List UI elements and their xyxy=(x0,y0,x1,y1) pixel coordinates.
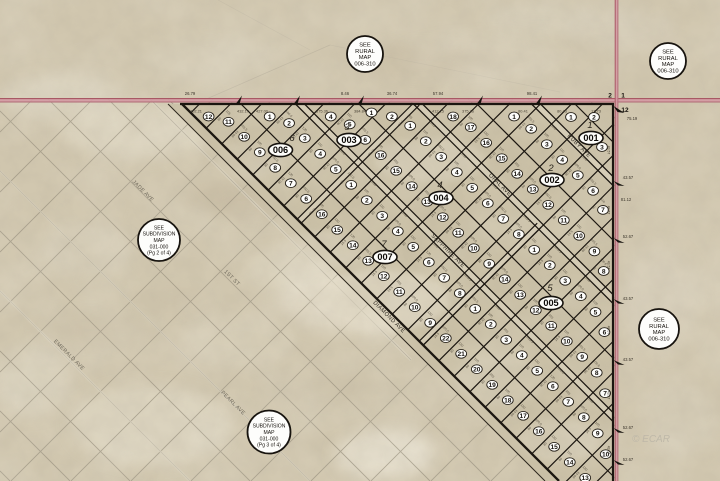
svg-text:52.67: 52.67 xyxy=(623,234,634,239)
svg-text:14: 14 xyxy=(566,460,574,467)
svg-text:SEE: SEE xyxy=(653,317,665,323)
svg-text:RURAL: RURAL xyxy=(658,56,678,62)
svg-text:13: 13 xyxy=(517,292,525,299)
svg-text:17: 17 xyxy=(520,413,528,420)
svg-text:6: 6 xyxy=(289,133,295,144)
svg-text:2: 2 xyxy=(390,114,394,121)
svg-text:(Pg 3 of 4): (Pg 3 of 4) xyxy=(257,443,281,449)
svg-text:4: 4 xyxy=(396,229,400,236)
svg-text:16: 16 xyxy=(483,140,491,147)
svg-text:402.21: 402.21 xyxy=(190,109,202,114)
svg-text:1: 1 xyxy=(349,182,353,189)
svg-text:5: 5 xyxy=(411,244,415,251)
svg-text:6: 6 xyxy=(486,201,490,208)
svg-text:SEE: SEE xyxy=(662,49,674,55)
svg-text:52.67: 52.67 xyxy=(623,425,634,430)
svg-text:7: 7 xyxy=(289,181,293,188)
svg-text:43.57: 43.57 xyxy=(607,391,611,400)
svg-text:3: 3 xyxy=(504,337,508,344)
svg-text:RURAL: RURAL xyxy=(355,49,375,55)
svg-text:MAP: MAP xyxy=(153,238,165,244)
svg-text:9: 9 xyxy=(596,431,600,438)
svg-text:15: 15 xyxy=(393,168,401,175)
svg-text:8: 8 xyxy=(582,415,586,422)
svg-text:3: 3 xyxy=(380,213,384,220)
svg-text:9: 9 xyxy=(593,249,597,256)
svg-text:5: 5 xyxy=(535,368,539,375)
svg-text:14: 14 xyxy=(408,184,416,191)
svg-text:6: 6 xyxy=(427,260,431,267)
svg-text:5: 5 xyxy=(594,309,598,316)
svg-text:5: 5 xyxy=(547,283,553,294)
svg-text:2: 2 xyxy=(365,198,369,205)
svg-text:MAP: MAP xyxy=(662,62,675,68)
svg-text:SUBDIVISION: SUBDIVISION xyxy=(143,232,176,238)
svg-text:4: 4 xyxy=(437,180,442,191)
svg-text:43.57: 43.57 xyxy=(607,206,611,215)
svg-text:432.17: 432.17 xyxy=(237,109,249,114)
svg-text:18: 18 xyxy=(504,398,512,405)
svg-text:5: 5 xyxy=(576,173,580,180)
svg-text:006-310: 006-310 xyxy=(354,62,375,68)
svg-text:SUBDIVISION: SUBDIVISION xyxy=(253,424,286,430)
svg-text:15: 15 xyxy=(498,156,506,163)
svg-text:1: 1 xyxy=(408,123,412,130)
svg-text:3: 3 xyxy=(303,136,307,143)
svg-text:4: 4 xyxy=(560,157,564,164)
svg-text:12: 12 xyxy=(439,215,447,222)
svg-text:2: 2 xyxy=(287,120,291,127)
svg-text:2: 2 xyxy=(592,114,596,121)
svg-text:7: 7 xyxy=(601,207,605,214)
svg-text:2: 2 xyxy=(548,263,552,270)
svg-text:11: 11 xyxy=(560,218,567,225)
svg-text:(Pg 2 of 4): (Pg 2 of 4) xyxy=(147,251,171,257)
svg-text:1: 1 xyxy=(473,306,477,313)
svg-text:11: 11 xyxy=(455,230,462,237)
svg-text:98.41: 98.41 xyxy=(527,91,538,96)
svg-text:© ECAR: © ECAR xyxy=(632,434,670,445)
svg-text:384.84: 384.84 xyxy=(354,109,367,114)
svg-text:RURAL: RURAL xyxy=(649,324,669,330)
svg-text:375.36: 375.36 xyxy=(462,109,474,114)
svg-text:3: 3 xyxy=(600,144,604,151)
svg-text:43.57: 43.57 xyxy=(623,175,634,180)
svg-text:4: 4 xyxy=(579,294,583,301)
svg-text:001: 001 xyxy=(583,133,598,143)
svg-text:1: 1 xyxy=(569,114,573,121)
svg-text:5: 5 xyxy=(334,167,338,174)
svg-text:8: 8 xyxy=(517,232,521,239)
svg-text:007: 007 xyxy=(377,252,392,262)
svg-text:8: 8 xyxy=(595,370,599,377)
svg-text:9: 9 xyxy=(258,150,262,157)
svg-text:2: 2 xyxy=(547,163,554,174)
svg-text:3: 3 xyxy=(344,122,350,133)
svg-text:7: 7 xyxy=(501,216,505,223)
svg-text:7: 7 xyxy=(381,239,387,250)
svg-text:43.57: 43.57 xyxy=(623,296,634,301)
svg-text:10: 10 xyxy=(576,233,584,240)
svg-text:12: 12 xyxy=(545,202,553,209)
svg-text:14: 14 xyxy=(514,171,522,178)
svg-text:006: 006 xyxy=(273,145,288,155)
svg-text:16: 16 xyxy=(377,153,385,160)
svg-text:10: 10 xyxy=(241,134,249,141)
svg-text:80.43: 80.43 xyxy=(557,109,567,114)
svg-text:43.57: 43.57 xyxy=(623,357,634,362)
svg-text:003: 003 xyxy=(341,135,356,145)
svg-text:13: 13 xyxy=(582,475,590,481)
svg-text:8: 8 xyxy=(273,165,277,172)
svg-text:12: 12 xyxy=(532,308,540,315)
svg-text:14: 14 xyxy=(349,243,357,250)
svg-text:2: 2 xyxy=(529,126,533,133)
svg-text:MAP: MAP xyxy=(263,430,275,436)
svg-text:11: 11 xyxy=(548,323,555,330)
svg-text:4: 4 xyxy=(455,170,459,177)
svg-text:43.57: 43.57 xyxy=(607,146,611,155)
svg-text:20: 20 xyxy=(473,367,481,374)
svg-text:1: 1 xyxy=(621,93,625,100)
svg-text:8: 8 xyxy=(458,291,462,298)
svg-text:MAP: MAP xyxy=(653,330,666,336)
svg-text:427.00: 427.00 xyxy=(256,109,269,114)
svg-text:375.36: 375.36 xyxy=(316,109,328,114)
svg-text:5: 5 xyxy=(470,185,474,192)
svg-text:412.15: 412.15 xyxy=(432,109,444,114)
svg-text:6: 6 xyxy=(363,137,367,144)
svg-text:031-000: 031-000 xyxy=(150,244,169,250)
svg-text:6: 6 xyxy=(304,196,308,203)
svg-text:006-310: 006-310 xyxy=(648,337,669,343)
svg-text:43.57: 43.57 xyxy=(607,326,611,335)
svg-text:21: 21 xyxy=(458,351,466,358)
svg-text:3: 3 xyxy=(545,142,549,149)
svg-text:SEE: SEE xyxy=(264,417,275,423)
svg-text:1: 1 xyxy=(532,247,536,254)
svg-text:006-310: 006-310 xyxy=(657,69,678,75)
svg-text:002: 002 xyxy=(544,175,559,185)
svg-text:14: 14 xyxy=(501,277,509,284)
svg-text:13: 13 xyxy=(529,187,537,194)
svg-text:1: 1 xyxy=(587,120,592,131)
svg-text:031-000: 031-000 xyxy=(260,436,279,442)
svg-text:9: 9 xyxy=(487,261,491,268)
svg-text:4: 4 xyxy=(520,353,524,360)
svg-text:12: 12 xyxy=(621,107,629,114)
svg-text:11: 11 xyxy=(396,289,403,296)
svg-text:13: 13 xyxy=(365,258,373,265)
svg-text:4: 4 xyxy=(318,151,322,158)
svg-text:8: 8 xyxy=(602,268,606,275)
svg-text:2: 2 xyxy=(424,139,428,146)
svg-text:12: 12 xyxy=(380,274,388,281)
svg-text:43.57: 43.57 xyxy=(607,261,611,270)
svg-text:1: 1 xyxy=(370,110,374,117)
svg-text:17: 17 xyxy=(467,125,475,132)
svg-text:7: 7 xyxy=(442,275,446,282)
svg-text:SEE: SEE xyxy=(154,225,165,231)
svg-text:26.79: 26.79 xyxy=(185,91,196,96)
svg-text:6: 6 xyxy=(603,329,607,336)
svg-text:7: 7 xyxy=(566,399,570,406)
svg-text:1: 1 xyxy=(268,114,272,121)
svg-text:6: 6 xyxy=(551,384,555,391)
svg-text:10: 10 xyxy=(563,339,571,346)
svg-text:36.74: 36.74 xyxy=(387,91,398,96)
svg-text:12: 12 xyxy=(205,114,213,121)
svg-text:10: 10 xyxy=(411,305,419,312)
svg-text:80.41: 80.41 xyxy=(518,109,528,114)
svg-text:19: 19 xyxy=(489,382,497,389)
svg-text:2: 2 xyxy=(608,93,612,100)
svg-text:2: 2 xyxy=(489,322,493,329)
svg-text:43.57: 43.57 xyxy=(607,446,611,455)
svg-text:MAP: MAP xyxy=(359,55,372,61)
svg-text:18: 18 xyxy=(449,114,457,121)
svg-text:004: 004 xyxy=(433,193,449,203)
svg-text:16: 16 xyxy=(535,429,543,436)
svg-text:1: 1 xyxy=(512,114,516,121)
svg-text:9: 9 xyxy=(428,320,432,327)
svg-text:52.67: 52.67 xyxy=(623,457,634,462)
svg-text:3: 3 xyxy=(439,154,443,161)
svg-text:81.12: 81.12 xyxy=(621,197,632,202)
svg-text:6: 6 xyxy=(591,188,595,195)
svg-text:SEE: SEE xyxy=(359,42,371,48)
svg-text:16: 16 xyxy=(318,212,326,219)
svg-text:22: 22 xyxy=(442,336,450,343)
svg-text:15: 15 xyxy=(334,227,342,234)
svg-text:005: 005 xyxy=(543,298,558,308)
svg-text:11: 11 xyxy=(225,119,232,126)
svg-text:15: 15 xyxy=(551,444,559,451)
svg-text:8.46: 8.46 xyxy=(341,91,350,96)
svg-text:75.19: 75.19 xyxy=(627,116,638,121)
svg-text:10: 10 xyxy=(470,246,478,253)
svg-text:9: 9 xyxy=(580,354,584,361)
svg-text:4: 4 xyxy=(329,114,333,121)
svg-text:17.73: 17.73 xyxy=(591,109,601,114)
svg-text:3: 3 xyxy=(563,278,567,285)
svg-text:57.94: 57.94 xyxy=(433,91,444,96)
